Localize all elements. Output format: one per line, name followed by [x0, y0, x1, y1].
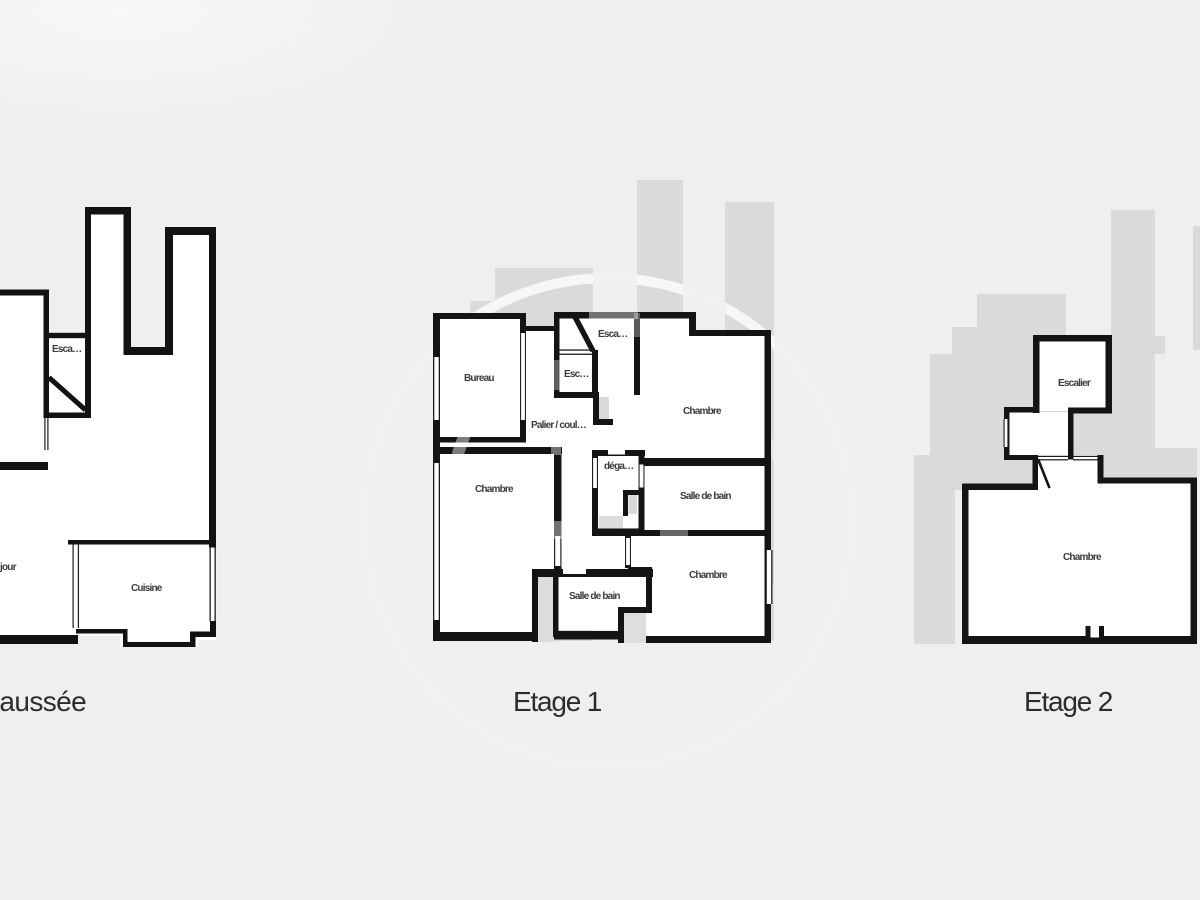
- svg-text:Esca…: Esca…: [598, 329, 627, 340]
- svg-text:chaussée: chaussée: [0, 686, 86, 717]
- svg-text:Chambre: Chambre: [683, 406, 722, 417]
- svg-text:déga…: déga…: [604, 461, 633, 472]
- svg-text:Esca…: Esca…: [52, 344, 81, 355]
- svg-text:Chambre: Chambre: [475, 484, 514, 495]
- svg-text:Chambre: Chambre: [689, 570, 728, 581]
- svg-text:jour: jour: [0, 562, 17, 573]
- svg-text:Esc…: Esc…: [564, 369, 589, 380]
- svg-text:Etage 2: Etage 2: [1024, 686, 1113, 717]
- svg-text:Cuisine: Cuisine: [131, 583, 163, 594]
- svg-text:Etage 1: Etage 1: [513, 686, 602, 717]
- svg-text:Salle de bain: Salle de bain: [569, 591, 620, 602]
- svg-text:Escalier: Escalier: [1058, 378, 1091, 389]
- svg-text:Chambre: Chambre: [1063, 552, 1102, 563]
- svg-text:Salle de bain: Salle de bain: [680, 491, 731, 502]
- svg-text:Palier / coul…: Palier / coul…: [531, 420, 586, 431]
- svg-text:Bureau: Bureau: [464, 373, 494, 384]
